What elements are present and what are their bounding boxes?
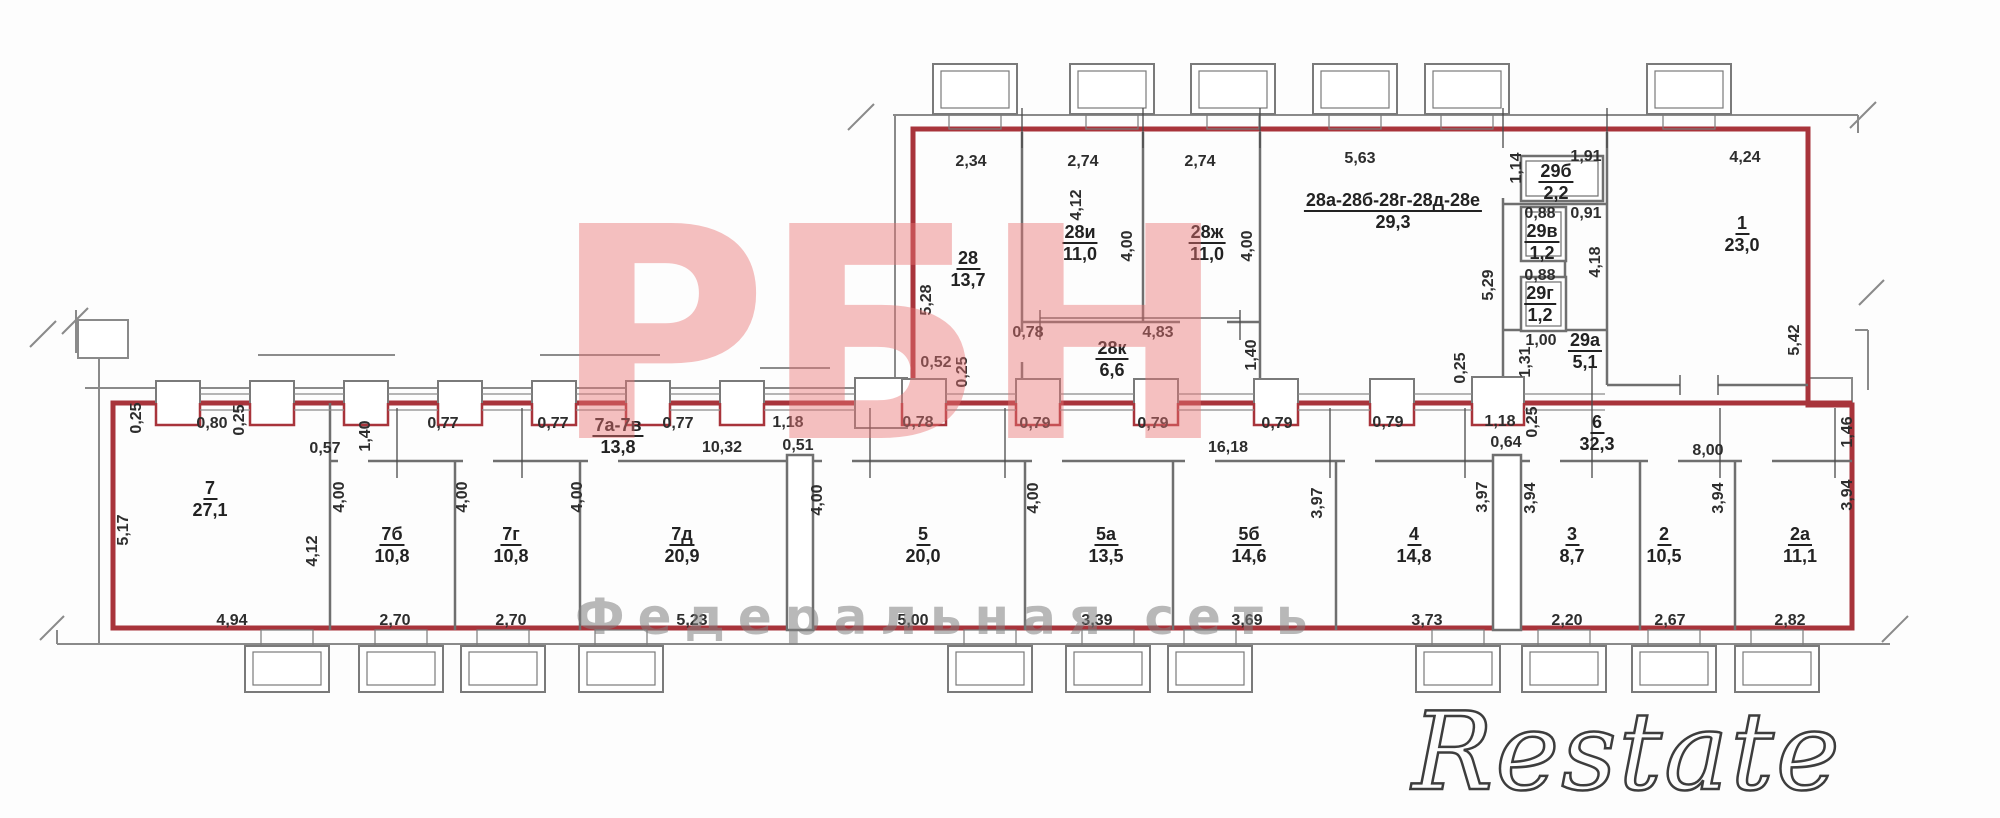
room-label-29а: 29а5,1 [1568,330,1602,372]
dimension-label: 2,82 [1774,613,1805,629]
dimension-label: 2,70 [379,613,410,629]
room-label-29г: 29г1,2 [1524,283,1556,325]
dimension-label: 2,20 [1551,613,1582,629]
dimension-label: 0,64 [1490,435,1521,451]
room-label-3: 38,7 [1559,524,1584,566]
room-label-29в: 29в1,2 [1524,221,1559,263]
dimension-label: 4,00 [455,481,471,512]
dimension-label: 1,31 [1518,346,1534,377]
dimension-label: 0,25 [1453,352,1469,383]
watermark-corner: Restate [1412,690,1842,815]
dimension-label: 3,97 [1310,487,1326,518]
room-label-5б: 5б14,6 [1231,524,1266,566]
dimension-label: 0,91 [1570,206,1601,222]
dimension-label: 0,88 [1524,268,1555,284]
watermark-subtitle: Федеральная сеть [575,588,1321,646]
dimension-label: 0,57 [309,441,340,457]
dimension-label: 0,79 [1372,415,1403,431]
dimension-label: 1,14 [1509,152,1525,183]
dimension-label: 1,91 [1570,149,1601,165]
dimension-label: 1,46 [1840,416,1856,447]
room-label-6: 632,3 [1579,412,1614,454]
dimension-label: 1,18 [1484,414,1515,430]
dimension-label: 3,94 [1523,482,1539,513]
room-label-4: 414,8 [1396,524,1431,566]
room-label-7г: 7г10,8 [493,524,528,566]
dimension-label: 4,00 [1240,230,1256,261]
watermark-brand: РБН [552,196,1222,476]
room-label-7: 727,1 [192,478,227,520]
dimension-label: 0,25 [129,402,145,433]
room-label-29б: 29б2,2 [1538,161,1573,203]
room-label-2а: 2а11,1 [1783,524,1817,566]
dimension-label: 0,25 [232,404,248,435]
dimension-label: 3,94 [1840,479,1856,510]
dimension-label: 1,40 [1244,339,1260,370]
room-label-5: 520,0 [905,524,940,566]
room-label-7д: 7д20,9 [664,524,699,566]
room-label-28а-28б-28г-28д-28е: 28а-28б-28г-28д-28е29,3 [1304,190,1482,232]
dimension-label: 0,79 [1261,416,1292,432]
dimension-label: 3,73 [1411,613,1442,629]
dimension-label: 1,40 [358,420,374,451]
dimension-label: 4,94 [216,613,247,629]
room-label-5а: 5а13,5 [1088,524,1123,566]
dimension-label: 3,94 [1711,482,1727,513]
dimension-label: 2,70 [495,613,526,629]
dimension-label: 0,77 [427,416,458,432]
dimension-label: 5,42 [1787,324,1803,355]
dimension-label: 4,18 [1588,246,1604,277]
room-label-1: 123,0 [1724,213,1759,255]
dimension-label: 2,67 [1654,613,1685,629]
dimension-label: 0,80 [196,416,227,432]
dimension-label: 0,88 [1524,206,1555,222]
dimension-label: 0,25 [1525,406,1541,437]
dimension-label: 5,63 [1344,151,1375,167]
dimension-label: 3,97 [1475,481,1491,512]
room-label-2: 210,5 [1646,524,1681,566]
floorplan-page: 2813,728и11,028ж11,028а-28б-28г-28д-28е2… [0,0,2000,818]
dimension-label: 4,12 [305,535,321,566]
dimension-label: 4,24 [1729,150,1760,166]
dimension-label: 5,17 [116,514,132,545]
dimension-label: 5,29 [1481,269,1497,300]
dimension-label: 8,00 [1692,443,1723,459]
room-label-7б: 7б10,8 [374,524,409,566]
dimension-label: 4,00 [332,481,348,512]
